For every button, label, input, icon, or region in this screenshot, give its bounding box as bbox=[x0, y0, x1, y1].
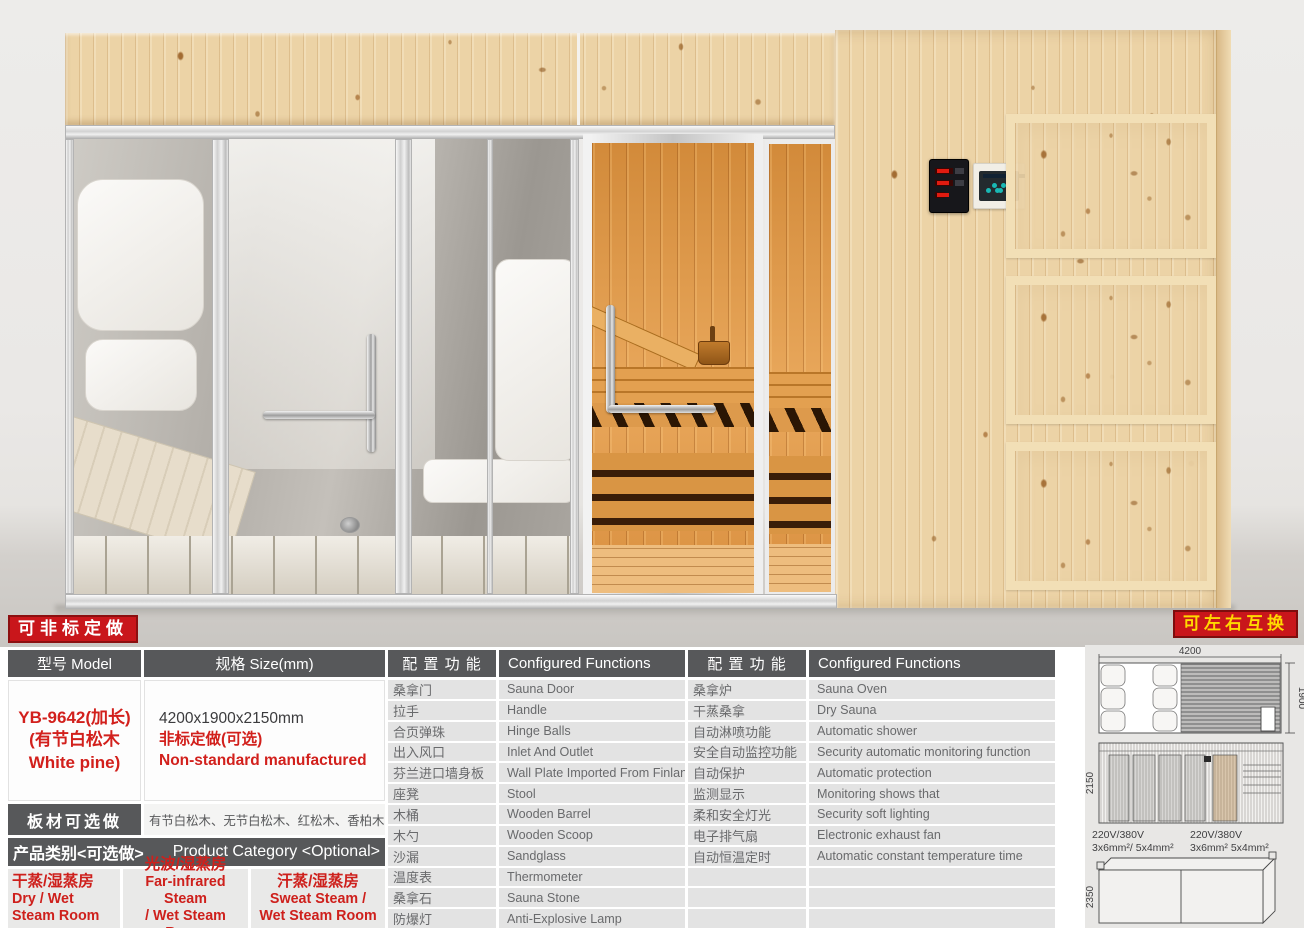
function-cn: 监测显示 bbox=[688, 784, 806, 803]
function-en: Wall Plate Imported From Finland bbox=[499, 763, 685, 782]
category-cell: 汗蒸/湿蒸房 Sweat Steam / Wet Steam Room bbox=[251, 869, 385, 928]
function-cn: 木勺 bbox=[388, 826, 496, 845]
function-cn bbox=[688, 909, 806, 928]
function-en: Sauna Oven bbox=[809, 680, 1055, 699]
wall-corner-board bbox=[1216, 30, 1231, 608]
top-wood-panel bbox=[65, 33, 835, 127]
function-en: Automatic protection bbox=[809, 763, 1055, 782]
function-en bbox=[809, 888, 1055, 907]
plan-door bbox=[1261, 707, 1275, 731]
function-en: Automatic constant temperature time bbox=[809, 847, 1055, 866]
function-en: Wooden Barrel bbox=[499, 805, 685, 824]
model-material-cn: (有节白松木 bbox=[29, 729, 120, 751]
wood-wall-section bbox=[835, 30, 1231, 608]
functions-header-en: Configured Functions bbox=[499, 650, 685, 677]
function-en: Inlet And Outlet bbox=[499, 743, 685, 762]
category-cn: 干蒸/湿蒸房 bbox=[12, 873, 116, 891]
panel-button bbox=[955, 180, 964, 186]
function-en: Stool bbox=[499, 784, 685, 803]
molded-seat bbox=[85, 339, 197, 411]
sauna-interior bbox=[769, 144, 831, 592]
category-en: / Wet Steam Room bbox=[127, 908, 244, 928]
niche-interior bbox=[1015, 451, 1207, 581]
function-en: Dry Sauna bbox=[809, 701, 1055, 720]
model-header: 型号 Model bbox=[8, 650, 141, 677]
functions-header-cn: 配 置 功 能 bbox=[688, 650, 806, 677]
functions-header-row: 配 置 功 能 Configured Functions 配 置 功 能 Con… bbox=[388, 650, 1055, 677]
bench-front-slats bbox=[592, 453, 754, 531]
category-en: Far-infrared Steam bbox=[127, 874, 244, 908]
elevation-sauna-door bbox=[1213, 755, 1237, 821]
function-en: Sauna Stone bbox=[499, 888, 685, 907]
sauna-door bbox=[583, 134, 763, 602]
sauna-door-handle bbox=[606, 305, 615, 413]
door-handle bbox=[367, 334, 376, 452]
function-cn: 自动淋喷功能 bbox=[688, 722, 806, 741]
sauna-bench bbox=[769, 372, 831, 408]
plan-depth-label: 1900 bbox=[1296, 687, 1304, 710]
display-button bbox=[995, 188, 1000, 193]
function-cn: 柔和安全灯光 bbox=[688, 805, 806, 824]
sauna-floor bbox=[592, 545, 754, 593]
plan-width-label: 4200 bbox=[1179, 646, 1202, 657]
board-header: 板材可选做 bbox=[8, 804, 141, 835]
bench-seat bbox=[423, 459, 575, 503]
functions-header-cn: 配 置 功 能 bbox=[388, 650, 496, 677]
function-cn: 拉手 bbox=[388, 701, 496, 720]
model-cell: YB-9642(加长) (有节白松木 White pine) bbox=[8, 680, 141, 801]
package-box bbox=[1097, 852, 1276, 923]
function-cn: 温度表 bbox=[388, 868, 496, 887]
category-en: Wet Steam Room bbox=[255, 908, 381, 925]
function-en: Sandglass bbox=[499, 847, 685, 866]
storage-niche bbox=[1006, 276, 1216, 424]
function-en bbox=[809, 909, 1055, 928]
niche-interior bbox=[1015, 285, 1207, 415]
function-cn: 合页弹珠 bbox=[388, 722, 496, 741]
function-en: Security automatic monitoring function bbox=[809, 743, 1055, 762]
category-en: Sweat Steam / bbox=[255, 891, 381, 908]
category-cn: 汗蒸/湿蒸房 bbox=[255, 873, 381, 891]
board-options: 有节白松木、无节白松木、红松木、香柏木 bbox=[144, 804, 385, 835]
drawings-svg: 4200 1900 bbox=[1085, 645, 1304, 928]
function-cn: 桑拿炉 bbox=[688, 680, 806, 699]
elevation-control-panel bbox=[1204, 756, 1211, 762]
category-cn: 光波/湿蒸房 bbox=[127, 856, 244, 874]
function-cn bbox=[688, 888, 806, 907]
function-cn: 自动恒温定时 bbox=[688, 847, 806, 866]
function-cn: 防爆灯 bbox=[388, 909, 496, 928]
frame-post bbox=[65, 139, 74, 594]
floor-drain bbox=[340, 517, 360, 533]
led-display bbox=[935, 168, 953, 174]
led-display bbox=[935, 192, 945, 198]
size-note-cn: 非标定做(可选) bbox=[159, 730, 384, 751]
power-voltage: 220V/380V bbox=[1190, 829, 1269, 842]
function-en: Security soft lighting bbox=[809, 805, 1055, 824]
package-height-label: 2350 bbox=[1085, 885, 1096, 908]
sauna-bench bbox=[592, 367, 754, 403]
model-material-en: White pine) bbox=[29, 752, 121, 774]
power-cable: 3x6mm²/ 5x4mm² bbox=[1092, 842, 1174, 855]
category-en: Steam Room bbox=[12, 908, 116, 925]
frame-post bbox=[395, 139, 412, 594]
function-en: Wooden Scoop bbox=[499, 826, 685, 845]
size-note-en: Non-standard manufactured bbox=[159, 751, 384, 772]
sauna-side-panel bbox=[765, 140, 835, 596]
category-cell: 干蒸/湿蒸房 Dry / Wet Steam Room bbox=[8, 869, 120, 928]
wooden-bucket bbox=[698, 341, 730, 365]
function-en: Automatic shower bbox=[809, 722, 1055, 741]
frame-post bbox=[487, 139, 493, 594]
catalog-page: 可非标定做 可左右互换 型号 Model 规格 Size(mm) YB-9642… bbox=[0, 0, 1304, 928]
power-cable: 3x6mm² 5x4mm² bbox=[1190, 842, 1269, 855]
function-en: Anti-Explosive Lamp bbox=[499, 909, 685, 928]
function-en: Electronic exhaust fan bbox=[809, 826, 1055, 845]
storage-niche bbox=[1006, 114, 1216, 258]
tiled-floor bbox=[65, 536, 578, 594]
door-handle-bar bbox=[263, 411, 375, 419]
function-en: Monitoring shows that bbox=[809, 784, 1055, 803]
function-en: Handle bbox=[499, 701, 685, 720]
control-panel bbox=[929, 159, 969, 213]
bench-vent-slats bbox=[769, 408, 831, 432]
swappable-badge: 可左右互换 bbox=[1173, 610, 1298, 638]
size-header: 规格 Size(mm) bbox=[144, 650, 385, 677]
panel-button bbox=[955, 168, 964, 174]
display-button bbox=[986, 188, 991, 193]
product-photo: 可非标定做 可左右互换 bbox=[0, 0, 1304, 647]
model-number: YB-9642(加长) bbox=[18, 707, 130, 729]
sauna-interior bbox=[592, 143, 754, 593]
sauna-door-handle-bar bbox=[608, 405, 716, 413]
category-header-cn: 产品类别<可选做> bbox=[13, 840, 144, 864]
function-cn: 干蒸桑拿 bbox=[688, 701, 806, 720]
function-cn bbox=[688, 868, 806, 887]
molded-seat bbox=[77, 179, 204, 331]
size-cell: 4200x1900x2150mm 非标定做(可选) Non-standard m… bbox=[144, 680, 385, 801]
seat-back bbox=[495, 259, 577, 461]
function-cn: 出入风口 bbox=[388, 743, 496, 762]
function-cn: 安全自动监控功能 bbox=[688, 743, 806, 762]
function-en: Thermometer bbox=[499, 868, 685, 887]
sauna-floor bbox=[769, 544, 831, 592]
function-cn: 电子排气扇 bbox=[688, 826, 806, 845]
function-cn: 座凳 bbox=[388, 784, 496, 803]
category-en: Dry / Wet bbox=[12, 891, 116, 908]
power-spec-right: 220V/380V 3x6mm² 5x4mm² bbox=[1190, 829, 1269, 855]
niche-interior bbox=[1015, 123, 1207, 249]
power-voltage: 220V/380V bbox=[1092, 829, 1174, 842]
steam-room-section bbox=[65, 139, 578, 594]
elevation-height-label: 2150 bbox=[1085, 771, 1096, 794]
function-cn: 自动保护 bbox=[688, 763, 806, 782]
size-value: 4200x1900x2150mm bbox=[159, 709, 384, 730]
function-en: Sauna Door bbox=[499, 680, 685, 699]
panel-divider bbox=[577, 33, 580, 125]
technical-drawings: 4200 1900 bbox=[1085, 645, 1304, 928]
function-cn: 桑拿石 bbox=[388, 888, 496, 907]
storage-niche bbox=[1006, 442, 1216, 590]
aluminum-bottom-rail bbox=[65, 594, 837, 609]
frame-post bbox=[212, 139, 229, 594]
function-cn: 桑拿门 bbox=[388, 680, 496, 699]
frame-post bbox=[570, 139, 579, 594]
function-cn: 沙漏 bbox=[388, 847, 496, 866]
bench-front-slats bbox=[769, 456, 831, 534]
function-en: Hinge Balls bbox=[499, 722, 685, 741]
sauna-unit bbox=[65, 30, 1231, 610]
function-cn: 芬兰进口墙身板 bbox=[388, 763, 496, 782]
led-display bbox=[935, 180, 953, 186]
customizable-badge: 可非标定做 bbox=[8, 615, 138, 643]
function-en bbox=[809, 868, 1055, 887]
function-cn: 木桶 bbox=[388, 805, 496, 824]
power-spec-left: 220V/380V 3x6mm²/ 5x4mm² bbox=[1092, 829, 1174, 855]
functions-table: 桑拿门Sauna Door桑拿炉Sauna Oven 拉手Handle干蒸桑拿D… bbox=[388, 680, 1055, 928]
functions-header-en: Configured Functions bbox=[809, 650, 1055, 677]
category-cell: 光波/湿蒸房 Far-infrared Steam / Wet Steam Ro… bbox=[123, 869, 248, 928]
